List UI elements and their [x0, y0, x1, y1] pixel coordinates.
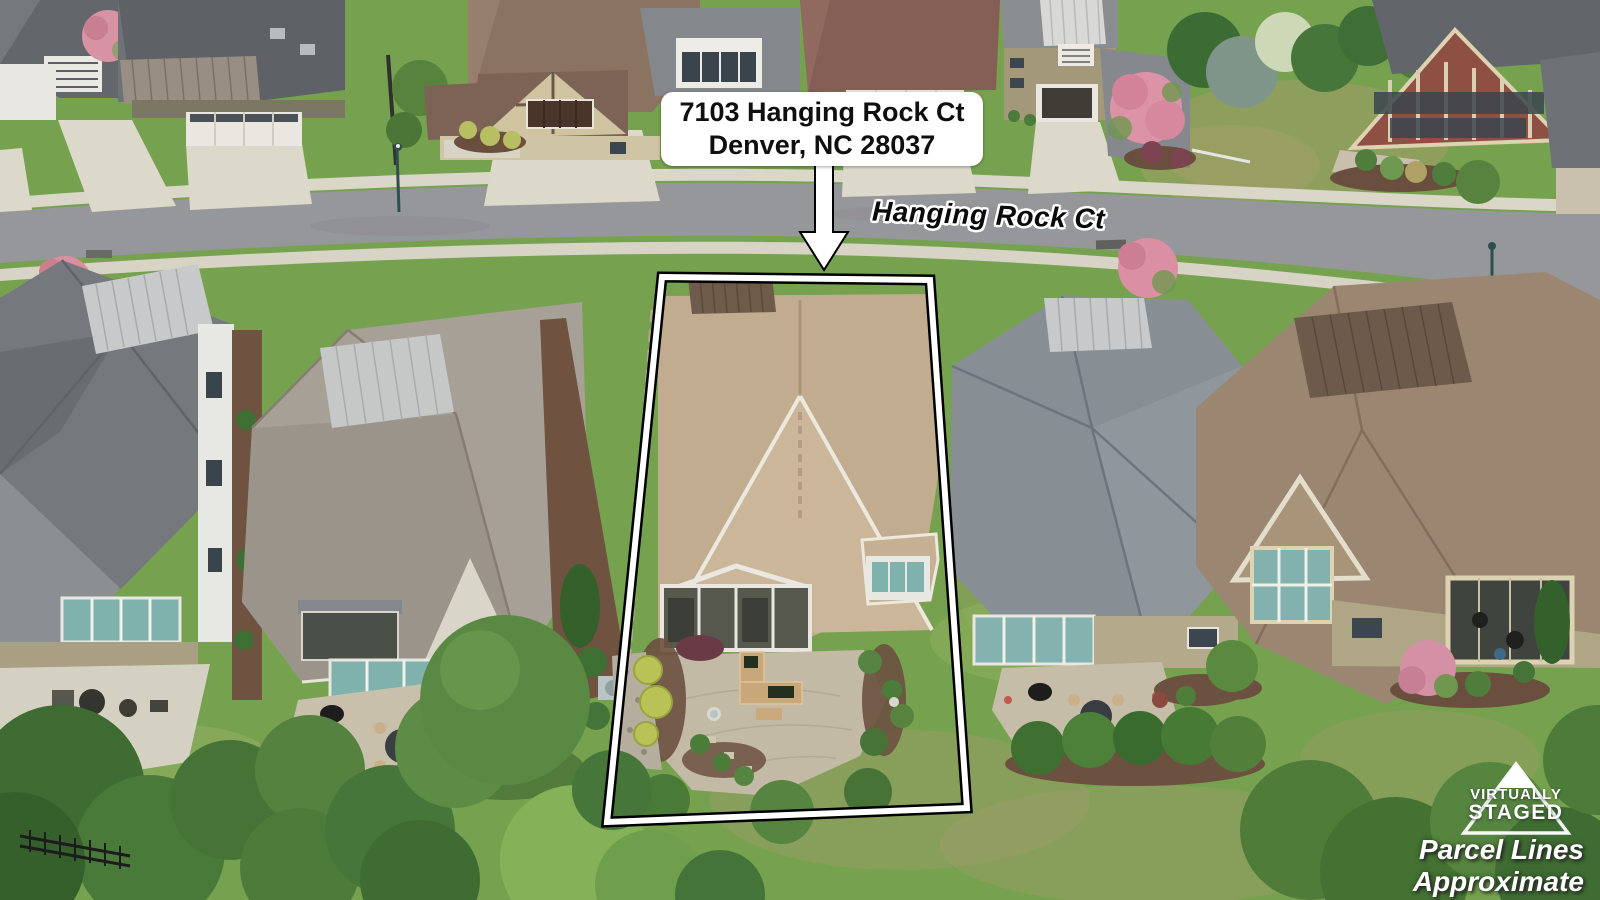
- disclaimer-line2: Approximate: [1340, 866, 1584, 898]
- virtually-staged-watermark: VIRTUALLY STAGED: [1448, 760, 1584, 838]
- address-callout: 7103 Hanging Rock Ct Denver, NC 28037: [661, 92, 983, 166]
- watermark-line2: STAGED: [1448, 801, 1584, 825]
- parcel-disclaimer: Parcel Lines Approximate: [1340, 834, 1584, 898]
- callout-arrow-icon: [780, 162, 880, 274]
- callout-address-line2: Denver, NC 28037: [709, 129, 936, 162]
- disclaimer-line1: Parcel Lines: [1340, 834, 1584, 866]
- aerial-photo: 7103 Hanging Rock Ct Denver, NC 28037 Ha…: [0, 0, 1600, 900]
- callout-address-line1: 7103 Hanging Rock Ct: [679, 96, 964, 129]
